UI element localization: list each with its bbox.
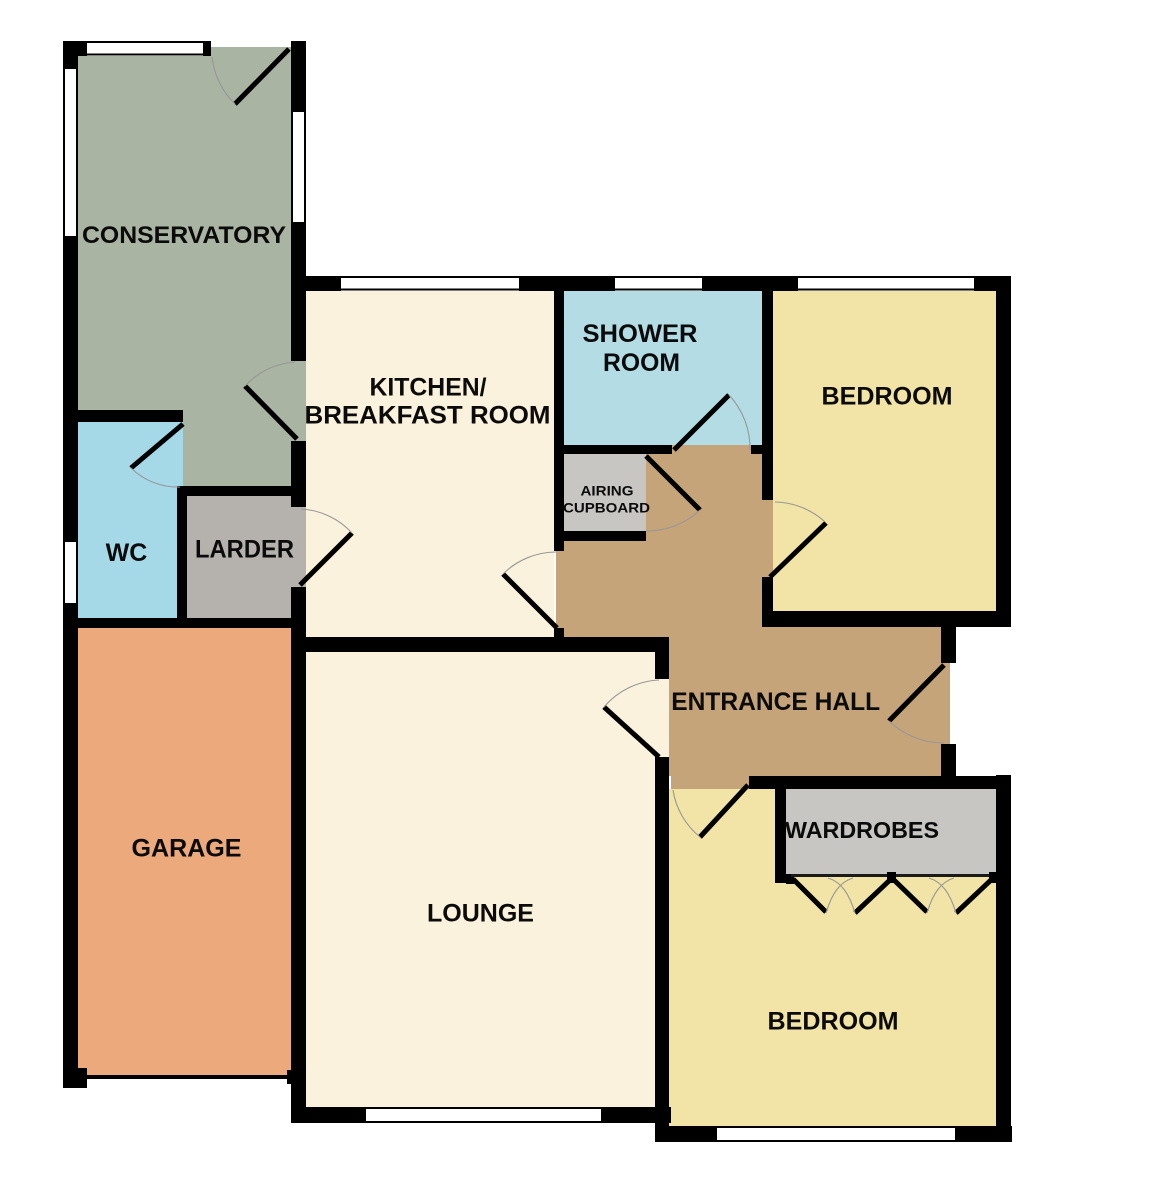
svg-text:ENTRANCE HALL: ENTRANCE HALL xyxy=(671,688,880,716)
svg-text:SHOWER: SHOWER xyxy=(583,320,698,348)
svg-text:LOUNGE: LOUNGE xyxy=(427,900,534,928)
svg-text:BREAKFAST ROOM: BREAKFAST ROOM xyxy=(305,402,551,430)
svg-text:AIRING: AIRING xyxy=(581,483,634,499)
svg-text:ROOM: ROOM xyxy=(603,349,680,377)
svg-text:BEDROOM: BEDROOM xyxy=(822,383,953,411)
svg-text:LARDER: LARDER xyxy=(195,536,294,564)
svg-text:GARAGE: GARAGE xyxy=(132,835,242,863)
svg-text:WC: WC xyxy=(106,539,148,567)
svg-text:BEDROOM: BEDROOM xyxy=(768,1008,899,1036)
svg-text:WARDROBES: WARDROBES xyxy=(785,817,939,843)
svg-text:CUPBOARD: CUPBOARD xyxy=(563,500,650,516)
svg-text:KITCHEN/: KITCHEN/ xyxy=(370,374,487,402)
svg-text:CONSERVATORY: CONSERVATORY xyxy=(82,222,286,249)
